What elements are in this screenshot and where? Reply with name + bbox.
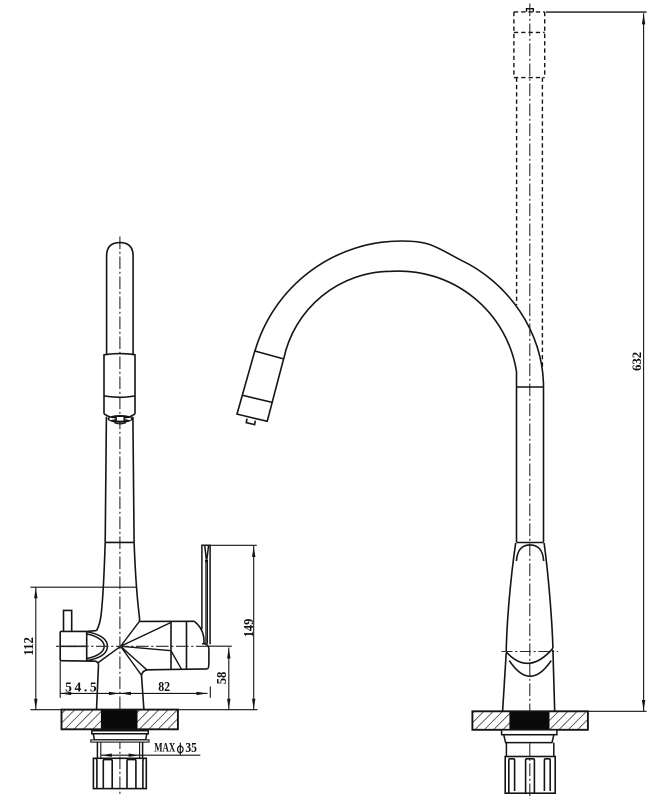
svg-text:35: 35 [185, 740, 197, 755]
svg-text:54.5: 54.5 [65, 679, 97, 694]
svg-text:82: 82 [158, 679, 170, 694]
svg-text:112: 112 [21, 637, 36, 656]
svg-text:149: 149 [242, 619, 257, 638]
svg-text:58: 58 [215, 672, 230, 685]
svg-text:MAX: MAX [154, 740, 175, 754]
svg-text:632: 632 [629, 352, 644, 371]
